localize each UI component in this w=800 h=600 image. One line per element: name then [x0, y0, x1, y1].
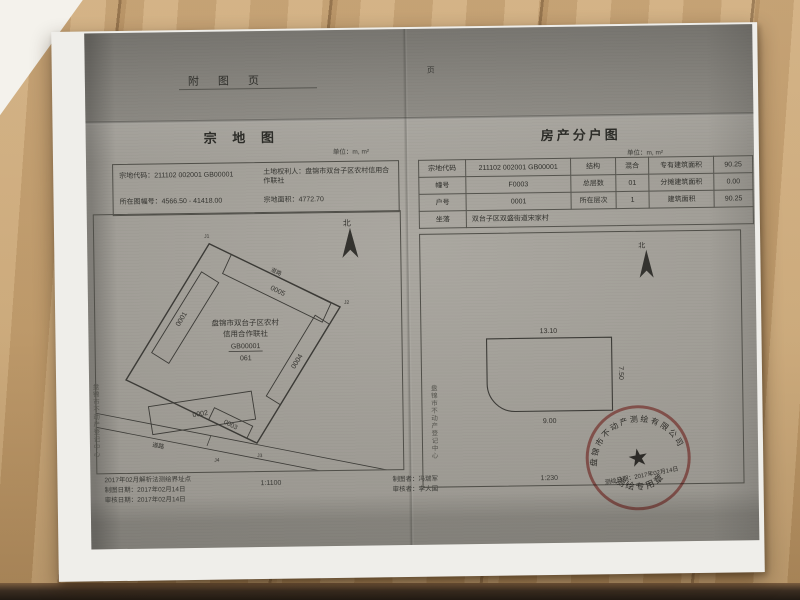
road-label-bottom: 道路: [152, 441, 165, 451]
side-text-right: 盘锦市不动产登记中心: [427, 385, 438, 460]
parcel-area: 宗地面积：4772.70: [263, 194, 323, 205]
parcel-map-unit: 单位：m, m²: [333, 146, 369, 157]
dimension-right: 7.50: [617, 366, 624, 380]
parcel-owner-line2: 信用合作联社: [223, 328, 269, 339]
review-date: 审核日期：2017年02月14日: [105, 495, 192, 506]
north-arrow-icon: [342, 228, 358, 258]
cell-value: 90.25: [713, 156, 752, 174]
cell-address: 双台子区双盛街道宋家村: [466, 207, 753, 228]
area-label: 宗地面积：: [264, 197, 299, 204]
cell-value: F0003: [466, 175, 571, 193]
road-line-2: [97, 423, 404, 473]
cell-label: 宗地代码: [419, 160, 466, 178]
floor-plan-unit: 单位：m, m²: [627, 146, 663, 157]
desk-edge: [0, 583, 800, 600]
surveyor-seal: 盘锦市不动产测绘有限公司 ★ 测绘日期：2017年02月14日 测绘专用章: [573, 392, 704, 523]
photo-scene: 附 图 页 页 宗 地 图 单位：m, m² 宗地代码：211102 00200…: [0, 0, 800, 600]
cell-label: 总层数: [571, 175, 616, 193]
left-map-scale: 1:1100: [260, 480, 281, 487]
parcel-code-label: 宗地代码：: [119, 173, 154, 180]
land-owner: 土地权利人：盘锦市双台子区农村信用合作联社: [263, 166, 393, 186]
building-0001-label: 0001: [175, 311, 189, 328]
boundary-point-j2: J2: [344, 300, 350, 306]
boundary-point-j3: J3: [257, 453, 263, 459]
cell-label: 坐落: [419, 211, 466, 229]
building-0002-label: 0002: [192, 410, 209, 419]
cell-value: 0001: [466, 192, 571, 210]
north-label-right: 北: [638, 242, 645, 250]
road-line-1: [97, 409, 404, 473]
cell-value: 混合: [616, 157, 649, 174]
floor-plan-title: 房产分户图: [541, 124, 621, 144]
dimension-bottom: 9.00: [543, 418, 557, 425]
north-arrow-icon: [639, 250, 653, 278]
north-label-left: 北: [343, 219, 351, 228]
parcel-code-row: 宗地代码：211102 002001 GB00001: [119, 169, 233, 181]
cell-label: 专有建筑面积: [649, 156, 714, 174]
cell-label: 分摊建筑面积: [649, 173, 714, 191]
parcel-code-value: 211102 002001 GB00001: [154, 171, 233, 179]
top-crease: [85, 112, 753, 124]
right-plan-scale: 1:230: [540, 475, 558, 482]
owner-label: 土地权利人：: [263, 168, 305, 176]
cell-label: 结构: [571, 158, 616, 176]
star-icon: ★: [625, 443, 651, 474]
left-footer-notes: 2017年02月解析法测绘界址点 制图日期：2017年02月14日 审核日期：2…: [104, 475, 191, 506]
cell-value: 0.00: [714, 173, 753, 191]
sheet-label: 所在图幅号：: [120, 198, 162, 206]
parcel-map-title: 宗 地 图: [204, 127, 280, 147]
cell-value: 01: [616, 174, 649, 191]
dimension-top: 13.10: [540, 328, 558, 335]
scanned-page: 附 图 页 页 宗 地 图 单位：m, m² 宗地代码：211102 00200…: [84, 24, 759, 549]
cell-value: 90.25: [714, 190, 753, 208]
table-row: 坐落 双台子区双盛街道宋家村: [419, 207, 753, 229]
parcel-map-svg: 北 0005 0001 0002: [94, 211, 404, 473]
cell-label: 幢号: [419, 177, 466, 195]
side-text-left: 盘锦市不动产登记中心: [89, 383, 100, 458]
parcel-info-box: 宗地代码：211102 002001 GB00001 土地权利人：盘锦市双台子区…: [112, 160, 400, 216]
cell-label: 所在层次: [571, 192, 616, 210]
sheet-value: 4566.50 - 41418.00: [162, 198, 223, 206]
road-label-top: 道路: [270, 266, 284, 278]
house-outline: [487, 337, 613, 412]
building-0005-label: 0005: [269, 285, 286, 298]
road-tick: [207, 436, 211, 446]
boundary-point-j1: J1: [204, 234, 210, 240]
page-header-title: 附 图 页: [188, 72, 267, 89]
seal-svg: 盘锦市不动产测绘有限公司 ★ 测绘日期：2017年02月14日 测绘专用章: [573, 392, 704, 523]
cell-value: 211102 002001 GB00001: [466, 158, 571, 176]
parcel-owner-line1: 盘锦市双台子区农村: [211, 317, 279, 328]
parcel-map-drawing: 北 0005 0001 0002: [93, 210, 405, 474]
parcel-number-center: 061: [240, 355, 252, 362]
boundary-point-j4: J4: [214, 458, 220, 464]
page-number-mark: 页: [427, 65, 435, 76]
map-sheet-number: 所在图幅号：4566.50 - 41418.00: [120, 196, 223, 207]
document-paper: 附 图 页 页 宗 地 图 单位：m, m² 宗地代码：211102 00200…: [51, 22, 765, 582]
cell-label: 户号: [419, 194, 466, 212]
parcel-code-center: GB00001: [231, 343, 261, 350]
cell-value: 1: [616, 191, 649, 208]
area-value: 4772.70: [299, 196, 324, 203]
property-info-table: 宗地代码 211102 002001 GB00001 结构 混合 专有建筑面积 …: [418, 155, 754, 229]
cell-label: 建筑面积: [649, 190, 714, 208]
